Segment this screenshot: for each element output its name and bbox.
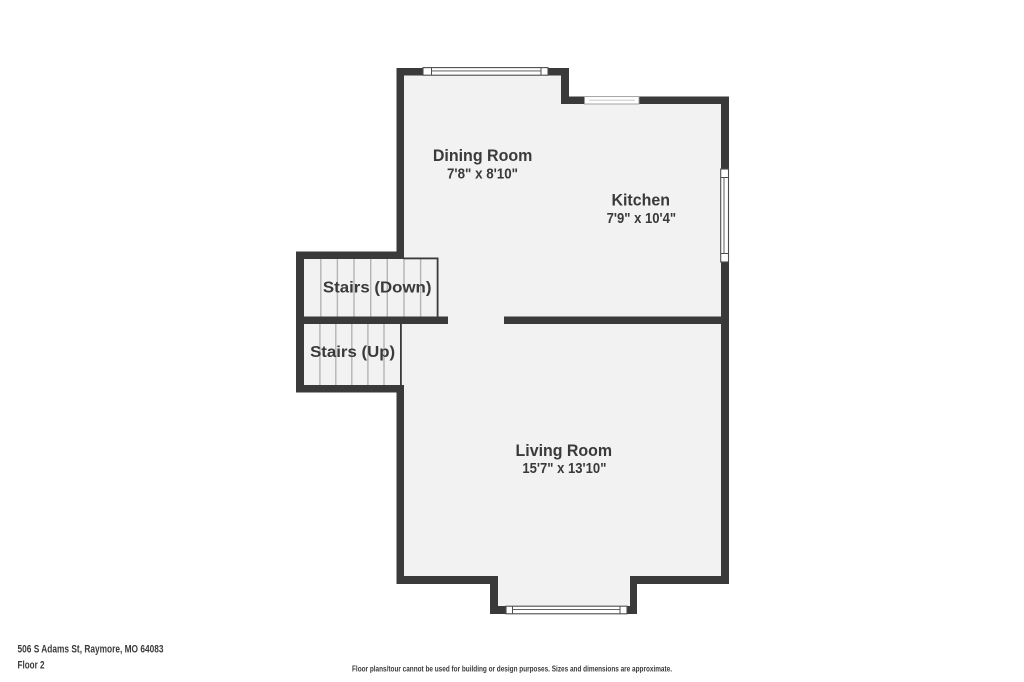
svg-text:Floor plans/tour cannot be use: Floor plans/tour cannot be used for buil… xyxy=(352,664,672,673)
svg-text:Kitchen: Kitchen xyxy=(611,191,670,210)
svg-text:Dining Room: Dining Room xyxy=(433,146,533,165)
svg-text:Floor 2: Floor 2 xyxy=(18,660,45,672)
svg-text:7'8" x 8'10": 7'8" x 8'10" xyxy=(447,167,518,183)
svg-text:Stairs (Down): Stairs (Down) xyxy=(323,280,432,297)
svg-text:Living Room: Living Room xyxy=(516,441,613,460)
svg-text:Stairs (Up): Stairs (Up) xyxy=(310,344,395,361)
svg-text:7'9" x 10'4": 7'9" x 10'4" xyxy=(607,211,677,227)
svg-text:506 S Adams St, Raymore, MO 64: 506 S Adams St, Raymore, MO 64083 xyxy=(18,644,164,656)
svg-text:15'7" x 13'10": 15'7" x 13'10" xyxy=(522,461,606,477)
